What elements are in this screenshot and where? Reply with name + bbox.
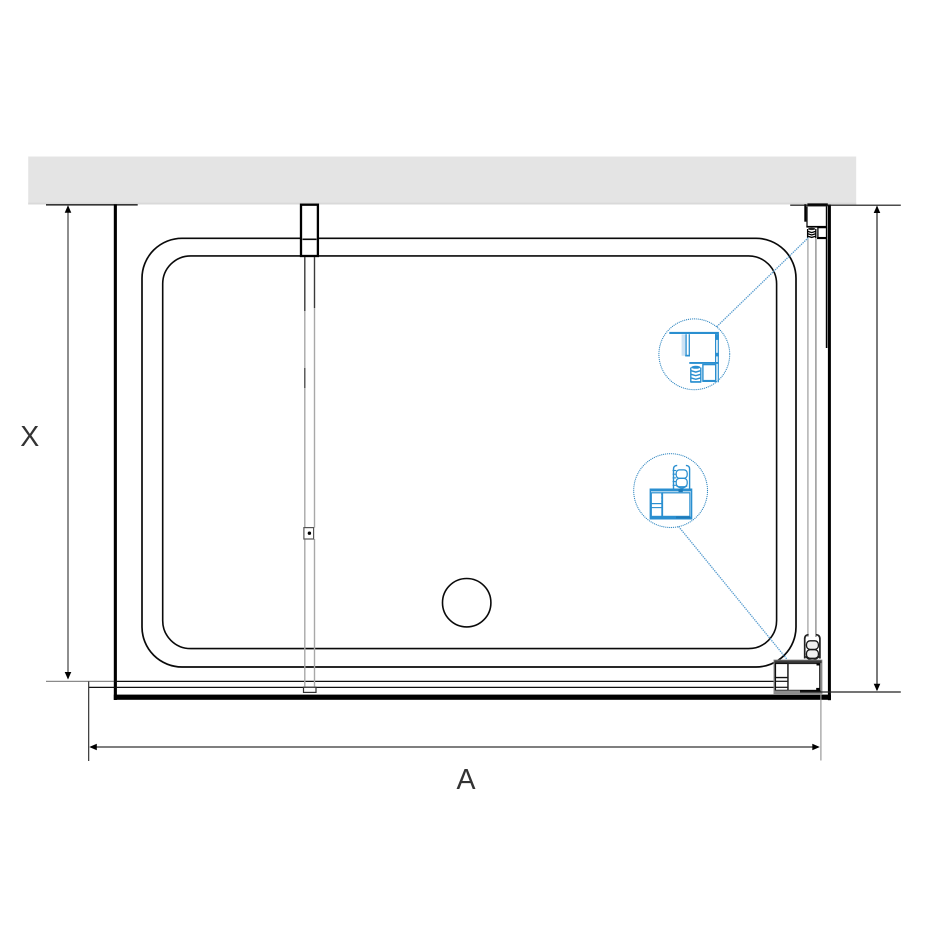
svg-text:X: X <box>20 421 39 453</box>
svg-text:A: A <box>456 764 475 796</box>
